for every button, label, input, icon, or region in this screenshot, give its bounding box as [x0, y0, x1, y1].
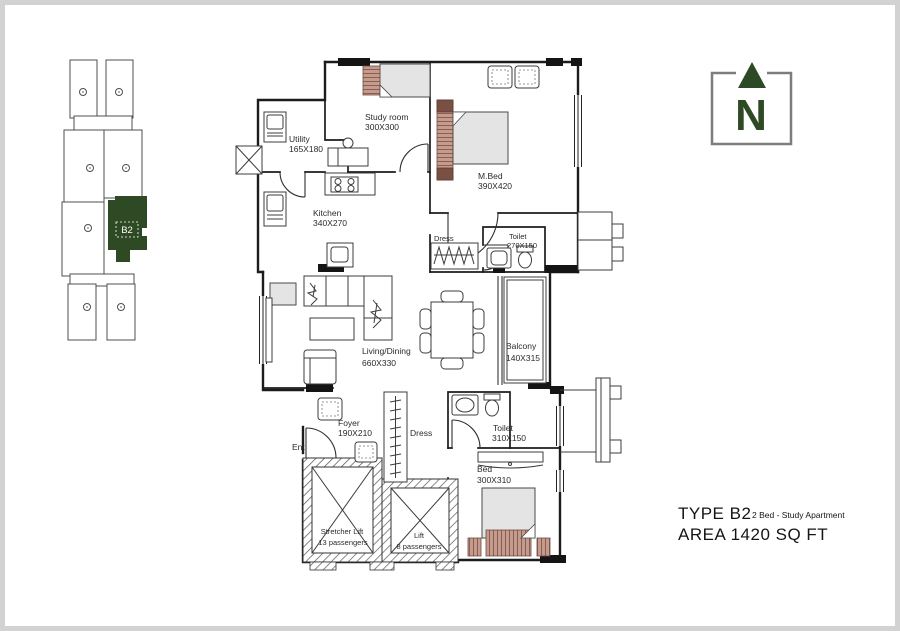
toilet-master-label: Toilet — [509, 232, 527, 241]
lift-shafts — [303, 458, 458, 570]
master-bed-label: M.Bed — [478, 171, 503, 181]
master-bed-furniture — [437, 66, 539, 180]
key-plan-block — [64, 130, 104, 202]
key-plan-unit-label: B2 — [121, 225, 133, 236]
study-dims: 300X300 — [365, 122, 399, 132]
bed2-label: Bed — [477, 464, 492, 474]
dining-set — [420, 291, 484, 369]
lift-capacity: 8 passengers — [396, 542, 441, 551]
foyer-cabinet — [318, 398, 342, 420]
master-bed-dims: 390X420 — [478, 181, 512, 191]
armchair — [304, 350, 336, 384]
side-table — [270, 283, 296, 305]
coffee-table — [310, 318, 354, 340]
dress-bed2-label: Dress — [410, 428, 432, 438]
kitchen-sink-counter — [327, 243, 353, 267]
toilet-bed2-label: Toilet — [493, 423, 513, 433]
foyer-cabinet — [355, 442, 377, 462]
lift-foot — [436, 562, 454, 570]
kitchen-label: Kitchen — [313, 208, 342, 218]
key-plan-block — [104, 130, 142, 198]
toilet-master-dims: 270X150 — [507, 241, 537, 250]
type-label: TYPE B2 — [678, 504, 751, 523]
lift-foot — [310, 562, 336, 570]
window-bed2-a — [556, 406, 565, 446]
key-plan: B2 — [62, 60, 147, 340]
washing-machine — [264, 192, 286, 226]
stretcher-lift-capacity: 13 passengers — [318, 538, 367, 547]
window-master-bed — [574, 95, 583, 167]
washing-machine — [264, 112, 286, 142]
apartment-plan: Study room 300X300 Utility 165X180 Kitch… — [236, 58, 623, 570]
lift-label: Lift — [414, 531, 425, 540]
dress-master-wardrobe — [431, 243, 478, 269]
type-subtitle: 2 Bed - Study Apartment — [752, 510, 845, 520]
balcony-dims: 140X315 — [506, 353, 540, 363]
interior-walls — [258, 62, 578, 483]
north-arrow-icon — [738, 62, 766, 88]
study-desk — [328, 138, 368, 166]
window-bed2-b — [556, 470, 565, 492]
study-door — [400, 144, 428, 172]
balcony-sliding-door — [498, 276, 502, 385]
entry-label: Ent — [292, 442, 305, 452]
service-ducts — [560, 212, 623, 462]
north-letter: N — [735, 91, 767, 140]
kitchen-counter-stove — [325, 173, 375, 195]
key-plan-wing — [68, 284, 96, 340]
key-plan-block — [62, 202, 104, 276]
balcony-railing — [504, 277, 546, 383]
north-indicator: N — [712, 62, 791, 144]
toilet-bed2-fixtures — [452, 394, 500, 416]
dress-bed2-wardrobe — [384, 392, 407, 482]
toilet-bed2-dims: 310X150 — [492, 433, 526, 443]
entry-door — [306, 428, 336, 458]
key-plan-band — [74, 116, 132, 130]
floor-plan-sheet: B2 — [0, 0, 900, 631]
foyer-dims: 190X210 — [338, 428, 372, 438]
stretcher-lift-label: Stretcher Lift — [321, 527, 364, 536]
key-plan-wing — [107, 284, 135, 340]
living-dims: 660X330 — [362, 358, 396, 368]
title-block: TYPE B2 2 Bed - Study Apartment AREA 142… — [678, 504, 845, 544]
foyer-label: Foyer — [338, 418, 360, 428]
utility-label: Utility — [289, 134, 311, 144]
dress-master-label: Dress — [434, 234, 454, 243]
lift-foot — [370, 562, 394, 570]
utility-dims: 165X180 — [289, 144, 323, 154]
area-label: AREA 1420 SQ FT — [678, 525, 828, 544]
kitchen-dims: 340X270 — [313, 218, 347, 228]
study-bed — [363, 64, 430, 97]
floor-plan-canvas: B2 — [5, 5, 895, 626]
toilet-bed2-door — [452, 420, 480, 448]
tv-unit — [266, 298, 272, 362]
balcony-label: Balcony — [506, 341, 537, 351]
living-label: Living/Dining — [362, 346, 411, 356]
study-label: Study room — [365, 112, 408, 122]
bed2-dims: 300X310 — [477, 475, 511, 485]
utility-shaft — [236, 146, 262, 174]
